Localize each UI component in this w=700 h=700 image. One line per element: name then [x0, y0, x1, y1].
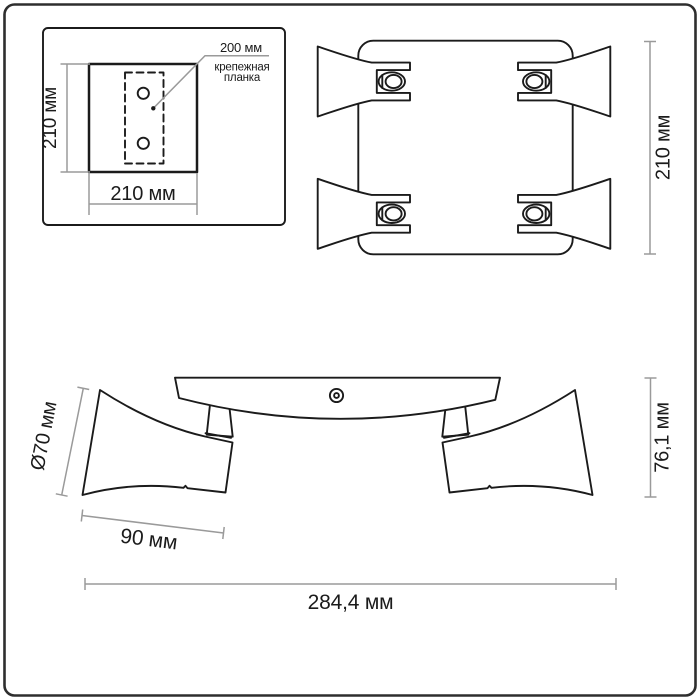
hinge-knob: [379, 72, 405, 90]
hinge-knob: [379, 205, 405, 223]
mounting-bar-dashed-outline: [125, 73, 164, 164]
hinge-knob: [523, 205, 549, 223]
side-height-label: 76,1 мм: [652, 402, 674, 473]
mounting-hole-top: [138, 88, 149, 99]
inset-view: 210 мм 210 мм 200 мм крепежная планка: [40, 28, 285, 225]
top-view-height-label: 210 мм: [653, 115, 675, 180]
leader-dot: [151, 106, 155, 110]
mount-bar-label-line2: планка: [224, 72, 261, 84]
hinge-knob: [523, 72, 549, 90]
drawing-canvas: 210 мм 210 мм 200 мм крепежная планка: [0, 0, 700, 700]
side-view: Ø70 мм 90 мм 76,1 мм 284,4 мм: [27, 378, 674, 614]
dimension-drawing: 210 мм 210 мм 200 мм крепежная планка: [0, 0, 700, 700]
inset-height-label: 210 мм: [40, 87, 61, 149]
overall-width-label: 284,4 мм: [308, 591, 394, 614]
inset-height-dimension: [61, 64, 91, 172]
mounting-hole-bottom: [138, 138, 149, 149]
hole-spacing-label: 200 мм: [220, 40, 262, 55]
diameter-label: Ø70 мм: [27, 400, 62, 473]
horn-length-label: 90 мм: [119, 525, 178, 555]
inset-width-label: 210 мм: [110, 183, 175, 205]
top-view: 210 мм: [318, 41, 675, 255]
overall-width-dimension: [85, 578, 616, 590]
